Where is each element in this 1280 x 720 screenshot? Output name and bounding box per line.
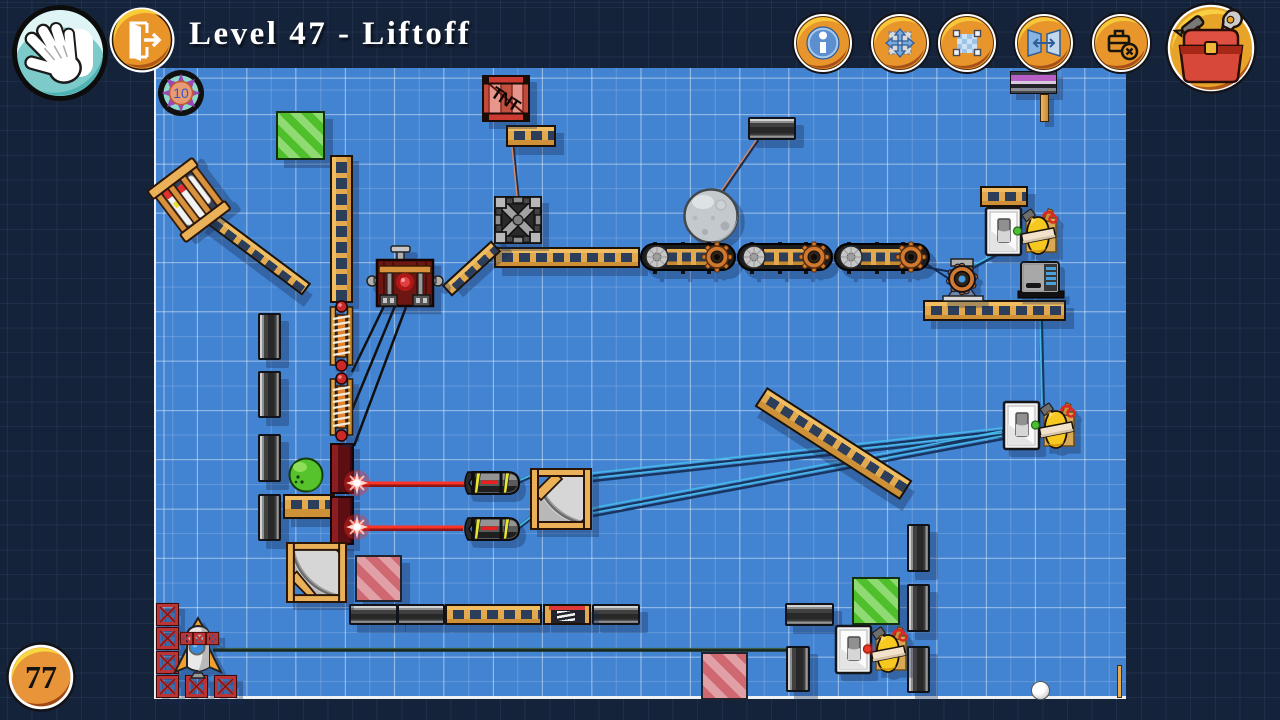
svg-text:77: 77 (25, 659, 57, 695)
svg-text:10: 10 (173, 85, 189, 101)
